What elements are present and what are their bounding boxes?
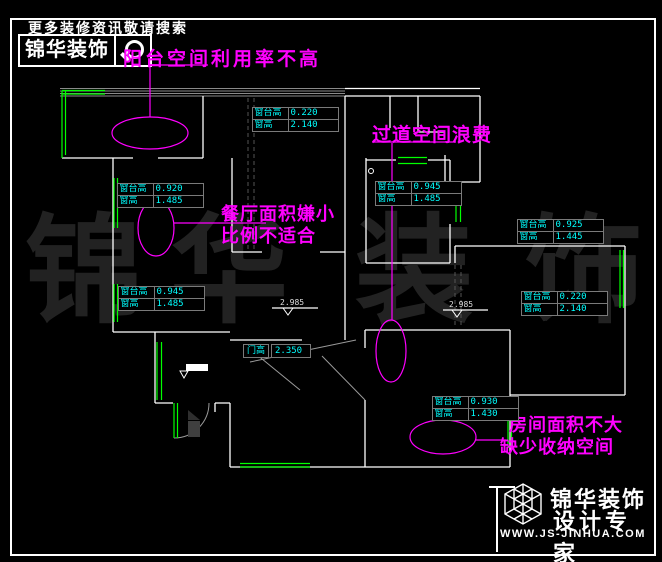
dim-value: 2.140 — [288, 119, 339, 132]
annotation-bedroom: 房间面积不大 缺少收纳空间 — [500, 414, 623, 458]
dim-value: 1.445 — [553, 231, 604, 244]
annotation-dining-line1: 餐厅面积嫌小 — [221, 203, 335, 225]
door-height-value: 2.350 — [271, 344, 311, 358]
dim-label: 窗高 — [118, 298, 155, 311]
windows-layer — [62, 91, 624, 468]
dim-value: 1.485 — [154, 298, 205, 311]
brand-name: 锦华装饰 — [20, 36, 114, 65]
dim-label: 窗高 — [521, 303, 558, 316]
annotation-balcony: 阳台空间利用率不高 — [123, 44, 321, 71]
level-bar — [186, 364, 208, 371]
level-mark-triangles — [180, 308, 462, 378]
annotation-dining: 餐厅面积嫌小 比例不适合 — [221, 203, 335, 247]
level-mark-value: 2.985 — [280, 298, 304, 307]
cad-floorplan-page: 锦 华 装 饰 更多装修资讯敬请搜索 锦华装饰 — [0, 0, 662, 562]
dimension-table: 窗台高0.925 窗高1.445 — [517, 219, 603, 243]
annotation-bedroom-line2: 缺少收纳空间 — [500, 436, 623, 458]
top-wall-band — [60, 89, 345, 97]
dim-value: 2.140 — [557, 303, 608, 316]
balcony-highlight-ellipse — [112, 117, 188, 149]
annotation-dining-line2: 比例不适合 — [221, 225, 335, 247]
dining-highlight-ellipse — [138, 200, 174, 256]
floorplan-drawing — [0, 0, 662, 562]
dim-value: 1.485 — [153, 195, 204, 208]
column-cap — [188, 410, 200, 420]
dimension-table: 窗台高0.945 窗高1.485 — [118, 286, 204, 310]
dimension-table: 窗台高0.930 窗高1.430 — [432, 396, 518, 420]
annotation-corridor: 过道空间浪费 — [372, 120, 492, 147]
dim-label: 窗高 — [375, 193, 412, 206]
dim-value: 1.485 — [411, 193, 462, 206]
footer-website: WWW.JS-JINHUA.COM — [500, 528, 646, 540]
cube-logo-icon — [500, 482, 546, 528]
dim-label: 窗高 — [432, 408, 469, 421]
bedroom-highlight-ellipse — [410, 420, 476, 454]
door-height-label: 门高 — [243, 344, 269, 358]
dimension-table: 窗台高0.920 窗高1.485 — [117, 183, 203, 207]
door-swing-lines — [174, 340, 365, 438]
dimension-table: 窗台高0.220 窗高2.140 — [521, 291, 607, 315]
column-symbol — [188, 421, 200, 437]
dimension-table: 窗台高0.945 窗高1.485 — [375, 181, 461, 205]
dim-label: 窗高 — [517, 231, 554, 244]
dimension-table: 窗台高0.220 窗高2.140 — [252, 107, 338, 131]
dim-label: 窗高 — [117, 195, 154, 208]
dim-value: 1.430 — [468, 408, 519, 421]
walls-layer — [62, 89, 625, 468]
corridor-highlight-ellipse — [376, 320, 406, 382]
annotation-bedroom-line1: 房间面积不大 — [509, 414, 623, 436]
dim-label: 窗高 — [252, 119, 289, 132]
level-mark-value: 2.985 — [449, 300, 473, 309]
footer-logo: 锦华装饰 设计专家 WWW.JS-JINHUA.COM — [500, 482, 655, 544]
footer-separator-vertical — [496, 486, 498, 552]
door-stop-symbol — [369, 169, 374, 174]
